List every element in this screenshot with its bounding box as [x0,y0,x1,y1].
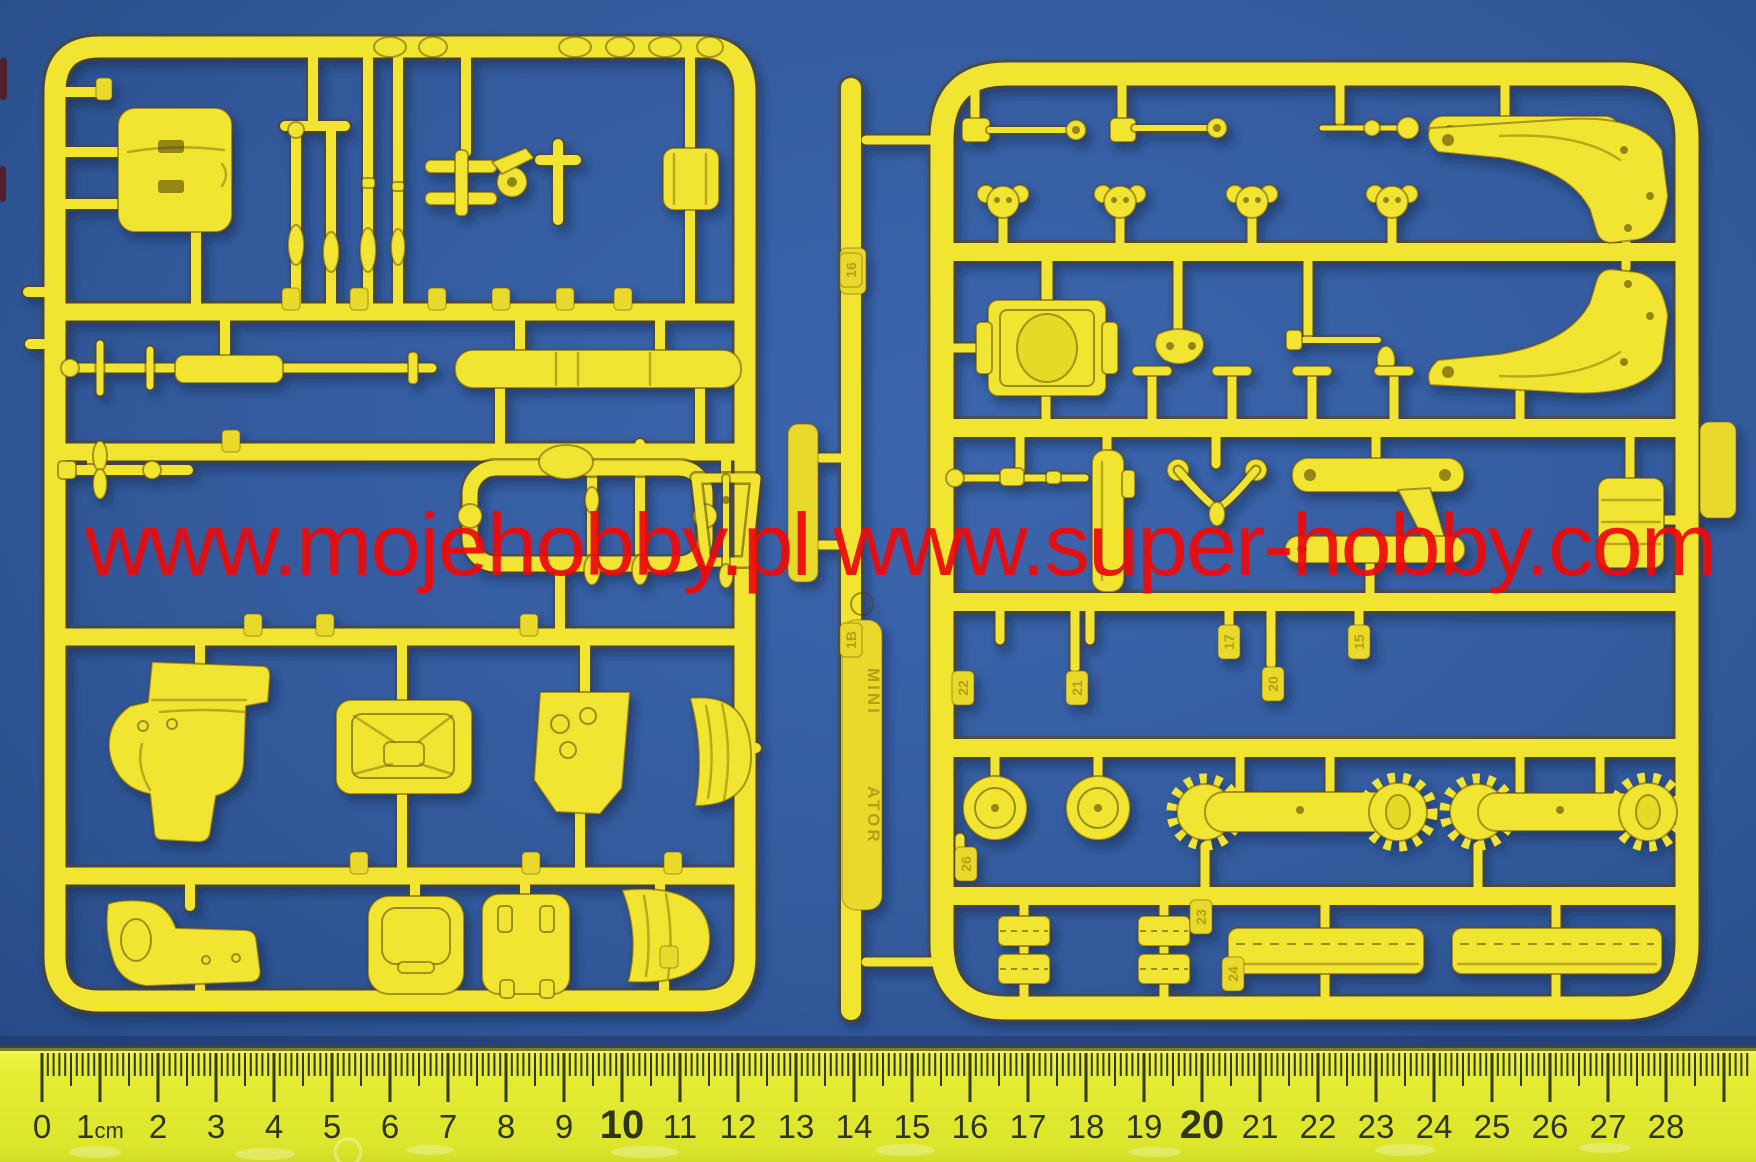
ruler-number: 18 [1068,1108,1105,1145]
ruler-number: 4 [265,1108,283,1145]
part-cylinder-muffler [663,148,719,210]
part-number-label: 15 [1351,634,1367,650]
part-seat-back [482,894,570,998]
ruler-number: 2 [149,1108,167,1145]
part-number-tab: 22 [952,671,974,705]
ruler-number: 9 [555,1108,573,1145]
part-number-label: 23 [1193,909,1209,925]
watermark-text: www.mojehobby.pl www.super-hobby.com [84,495,1715,594]
ruler-number: 27 [1590,1108,1627,1145]
photo-scene: 161B2221201715262324 MINIATOR 01cm234567… [0,0,1756,1162]
ruler-number: 7 [439,1108,457,1145]
ruler-number: 10 [600,1103,645,1147]
ruler-number: 12 [720,1108,757,1145]
ruler-number: 20 [1180,1103,1225,1147]
ruler-number: 24 [1416,1108,1453,1145]
part-number-tab: 23 [1190,900,1212,934]
ruler-top-edge [0,1046,1756,1051]
ruler: 01cm234567891011121314151617181920212223… [0,1046,1756,1162]
ruler-number: 0 [33,1108,51,1145]
part-hull-tub [118,108,232,232]
ruler-number: 14 [836,1108,873,1145]
runner-label: MINI [864,668,883,716]
ruler-number: 19 [1126,1108,1163,1145]
part-bucket [534,692,630,814]
ruler-number: 22 [1300,1108,1337,1145]
ruler-number: 5 [323,1108,341,1145]
part-number-tab: 16 [840,253,862,287]
part-number-tab: 20 [1262,667,1284,701]
ruler-number: 16 [952,1108,989,1145]
ruler-number: 17 [1010,1108,1047,1145]
ruler-number: 28 [1648,1108,1685,1145]
ruler-number: 11 [663,1108,697,1145]
ruler-number: 23 [1358,1108,1395,1145]
ruler-number: 6 [381,1108,399,1145]
part-hatch [976,300,1118,396]
ruler-number: 13 [778,1108,815,1145]
part-number-label: 17 [1221,634,1237,650]
part-long-cylinder [455,350,741,388]
part-number-label: 16 [843,262,859,278]
part-number-label: 24 [1225,966,1241,982]
part-seat-cushion [368,896,464,994]
part-number-label: 26 [958,856,974,872]
ruler-number: 25 [1474,1108,1511,1145]
ruler-number: 21 [1242,1108,1279,1145]
part-number-label: 22 [955,680,971,696]
part-tray [336,700,472,794]
ruler-number: 26 [1532,1108,1569,1145]
part-number-tab: 1B [840,623,862,657]
part-number-tab: 17 [1218,625,1240,659]
part-number-tab: 24 [1222,957,1244,991]
ruler-number: 8 [497,1108,515,1145]
runner-label: ATOR [864,786,883,845]
part-number-label: 21 [1069,680,1085,696]
part-number-label: 20 [1265,676,1281,692]
part-number-label: 1B [843,631,859,649]
ruler-number: 15 [894,1108,931,1145]
part-number-tab: 21 [1066,671,1088,705]
ruler-number: 3 [207,1108,225,1145]
part-number-tab: 15 [1348,625,1370,659]
part-number-tab: 26 [955,847,977,881]
ruler-numbers: 01cm234567891011121314151617181920212223… [33,1103,1685,1147]
